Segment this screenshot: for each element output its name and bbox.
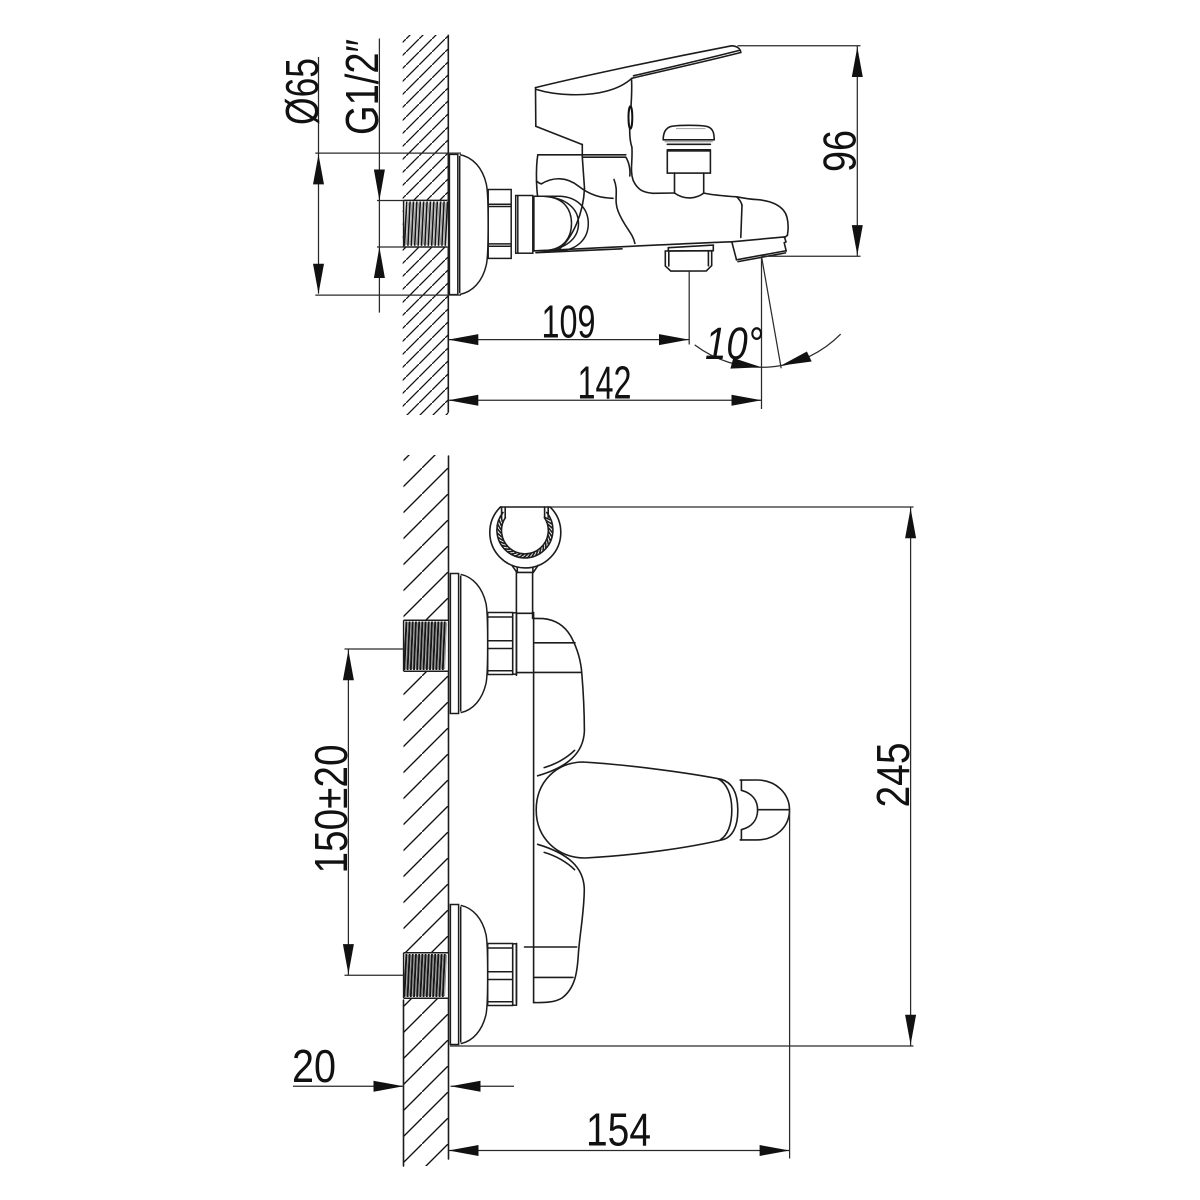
svg-text:150±20: 150±20: [305, 745, 357, 874]
svg-text:96: 96: [814, 130, 866, 172]
svg-text:109: 109: [542, 296, 596, 348]
svg-text:20: 20: [292, 1040, 336, 1092]
svg-text:245: 245: [867, 743, 919, 808]
svg-text:142: 142: [578, 356, 632, 408]
svg-text:10°: 10°: [705, 318, 763, 369]
svg-text:G1/2″: G1/2″: [336, 39, 388, 135]
svg-text:Ø65: Ø65: [276, 58, 328, 125]
svg-text:154: 154: [586, 1104, 651, 1156]
